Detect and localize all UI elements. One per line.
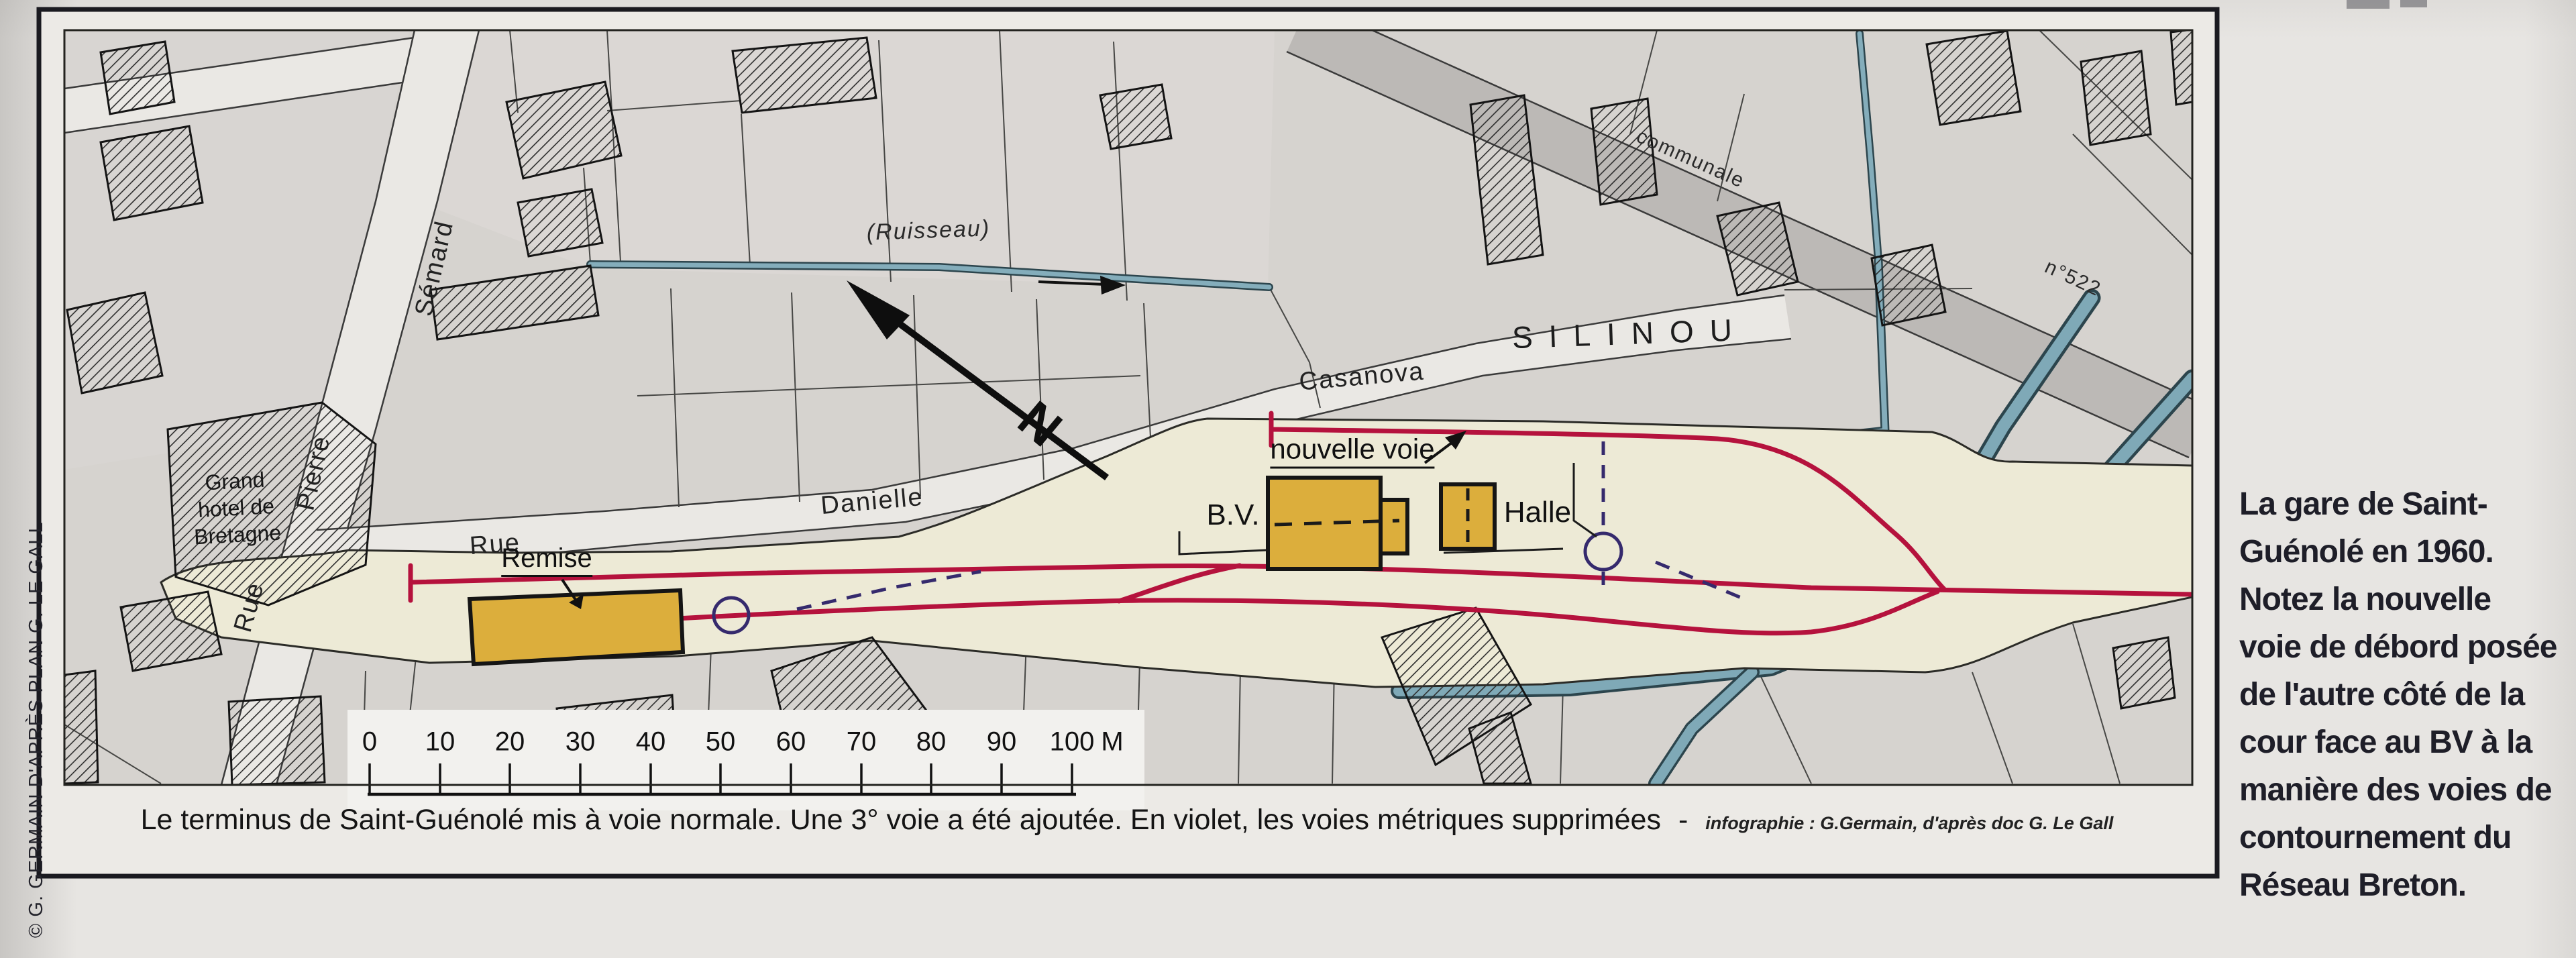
building-label-grand-hotel: Grand hotel de Bretagne (191, 466, 282, 551)
scale-tick-label: 20 (495, 727, 525, 757)
print-bleed-fragment (2400, 0, 2427, 7)
sidebar-line: La gare de Saint- (2239, 480, 2565, 528)
scale-tick-label: 80 (916, 727, 947, 757)
sidebar-line: cour face au BV à la (2239, 718, 2565, 766)
sidebar-line: de l'autre côté de la (2239, 671, 2565, 718)
area-label-ruisseau: (Ruisseau) (866, 215, 991, 246)
caption-dash: - (1678, 804, 1688, 837)
building-bv-annex (1381, 500, 1407, 553)
caption-credit: infographie : G.Germain, d'après doc G. … (1705, 813, 2113, 834)
sidebar-line: manière des voies de (2239, 766, 2565, 814)
scale-tick-label: 90 (987, 727, 1017, 757)
track-label-nouvelle-voie: nouvelle voie (1270, 433, 1434, 469)
building-label-halle: Halle (1504, 496, 1571, 529)
scale-unit-label: M (1101, 727, 1123, 757)
sidebar-line: contournement du (2239, 814, 2565, 861)
building-label-bv: B.V. (1206, 498, 1259, 532)
building-label-remise: Remise (501, 543, 592, 577)
scale-tick-label: 40 (636, 727, 666, 757)
hotel-line3: Bretagne (193, 519, 282, 551)
scale-bar (347, 710, 1144, 810)
copyright-credit: © G. GERMAIN D'APRÈS PLAN G. LE GALL (25, 475, 48, 938)
sidebar-line: Guénolé en 1960. (2239, 528, 2565, 576)
scale-tick-label: 100 (1050, 727, 1095, 757)
sidebar-caption-block: La gare de Saint- Guénolé en 1960. Notez… (2239, 480, 2565, 909)
scale-tick-label: 10 (425, 727, 455, 757)
scale-tick-label: 70 (847, 727, 877, 757)
sidebar-line: Notez la nouvelle (2239, 576, 2565, 623)
scale-tick-label: 30 (566, 727, 596, 757)
hotel-line1: Grand (191, 466, 279, 497)
caption-text: Le terminus de Saint-Guénolé mis à voie … (141, 804, 1661, 837)
sidebar-line: Réseau Breton. (2239, 861, 2565, 909)
scale-tick-label: 50 (706, 727, 736, 757)
scale-tick-label: 0 (362, 727, 377, 757)
hotel-line2: hotel de (192, 492, 280, 524)
sidebar-line: voie de débord posée (2239, 623, 2565, 671)
scale-tick-label: 60 (776, 727, 806, 757)
print-bleed-fragment (2347, 0, 2390, 9)
figure-caption: Le terminus de Saint-Guénolé mis à voie … (134, 804, 2120, 861)
